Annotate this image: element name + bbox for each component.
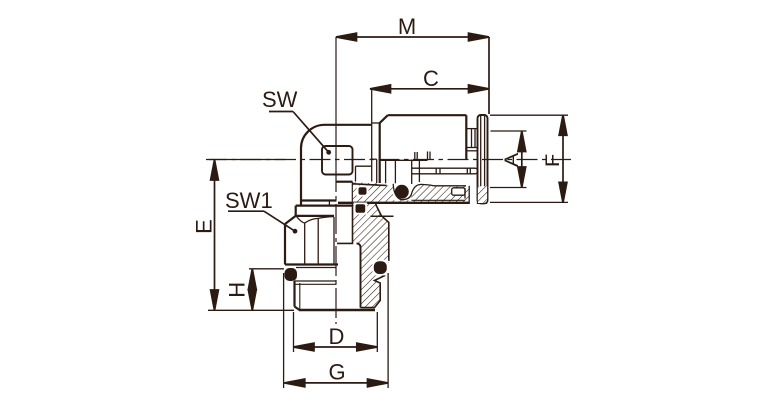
svg-text:SW: SW: [262, 87, 298, 112]
svg-text:E: E: [192, 219, 217, 234]
svg-text:A: A: [501, 152, 522, 167]
svg-text:SW1: SW1: [225, 188, 273, 213]
svg-text:C: C: [423, 66, 439, 91]
svg-text:F: F: [542, 154, 563, 167]
svg-text:G: G: [328, 360, 345, 385]
svg-text:H: H: [225, 282, 250, 298]
svg-text:D: D: [329, 324, 345, 349]
svg-text:M: M: [398, 14, 416, 39]
